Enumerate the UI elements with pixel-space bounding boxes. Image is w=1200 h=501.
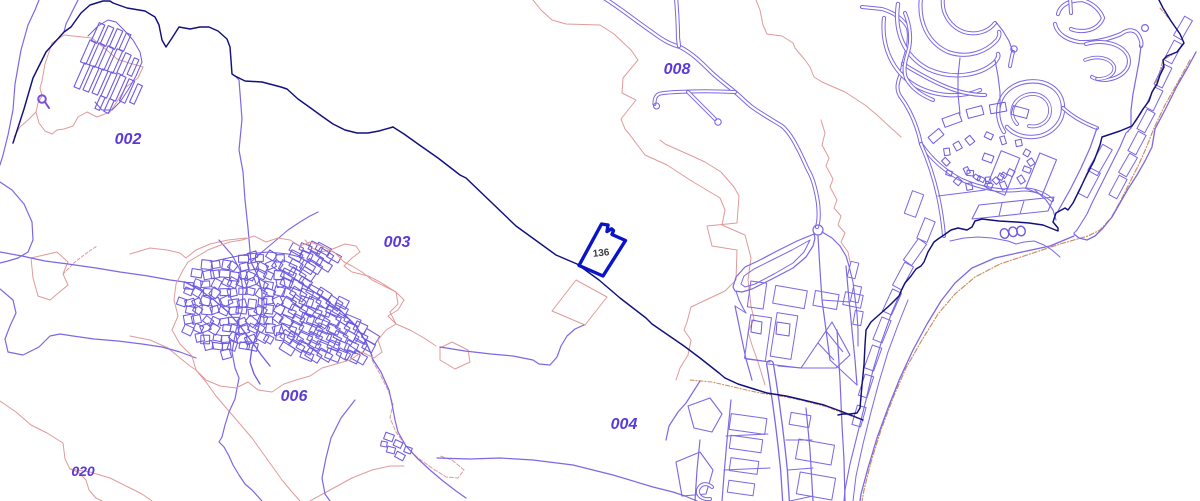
svg-text:020: 020 xyxy=(71,463,95,479)
svg-text:008: 008 xyxy=(664,61,691,78)
svg-text:006: 006 xyxy=(281,388,308,405)
svg-text:004: 004 xyxy=(611,416,638,433)
svg-text:002: 002 xyxy=(115,131,142,148)
svg-text:136: 136 xyxy=(592,247,610,260)
svg-text:003: 003 xyxy=(384,234,411,251)
